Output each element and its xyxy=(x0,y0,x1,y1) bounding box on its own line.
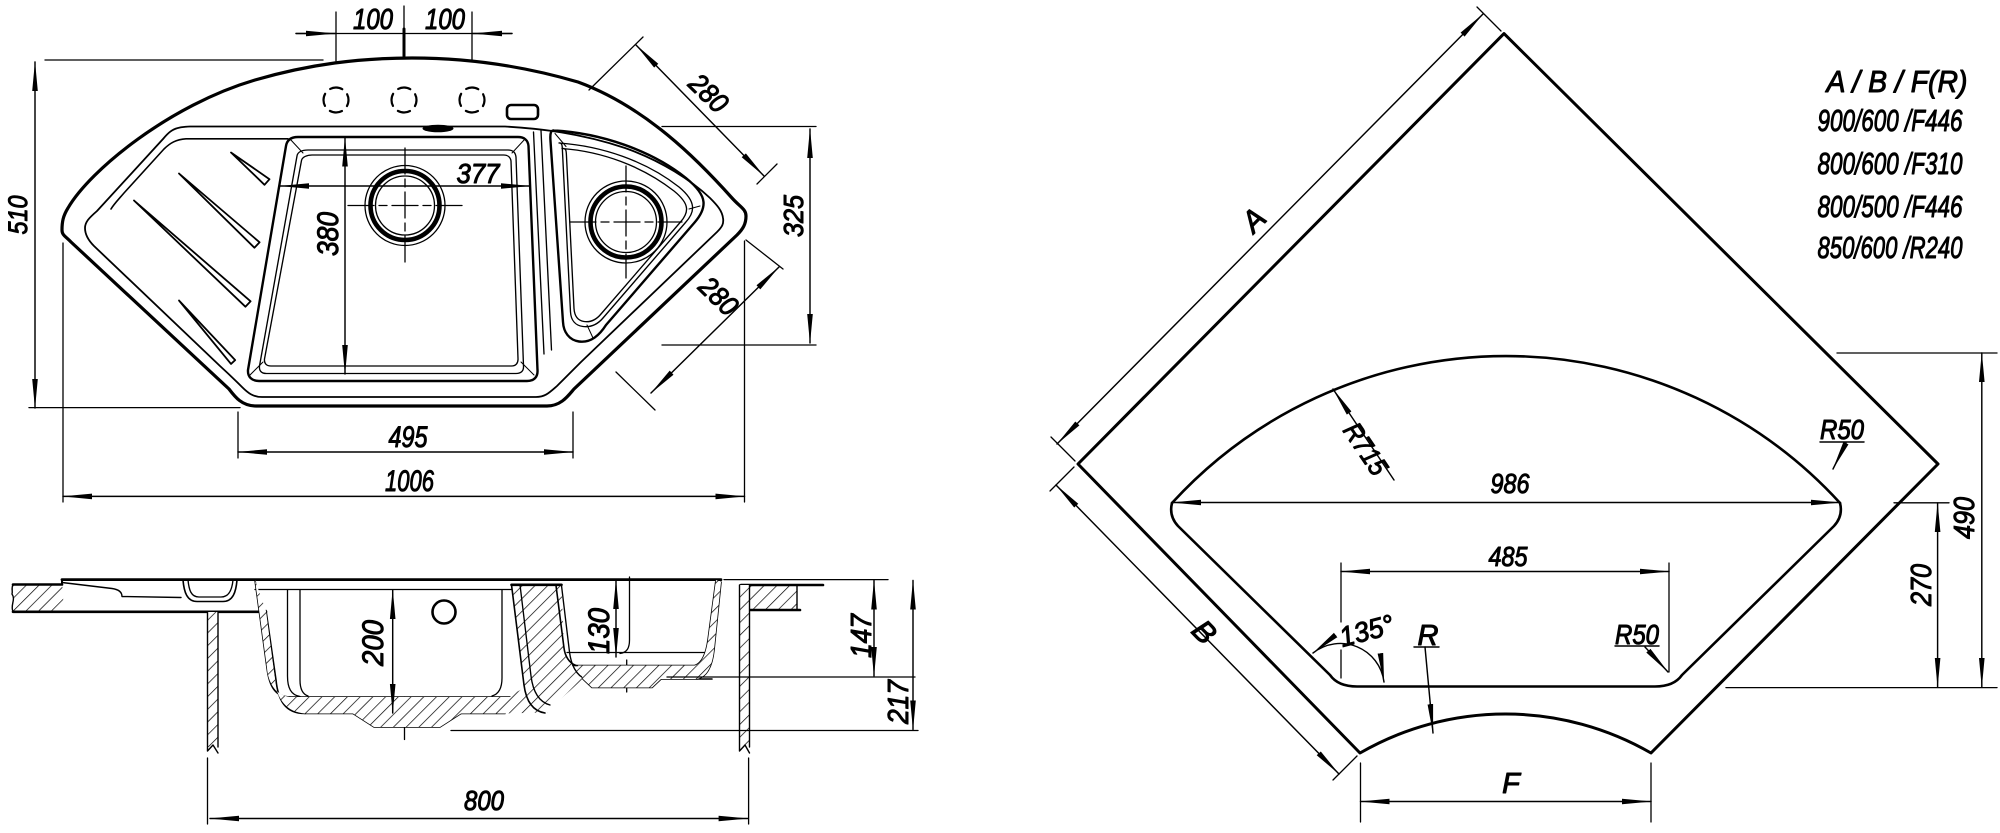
svg-text:B: B xyxy=(1185,614,1223,651)
svg-text:377: 377 xyxy=(457,158,501,189)
svg-text:325: 325 xyxy=(778,195,809,237)
svg-text:380: 380 xyxy=(312,212,345,256)
svg-text:485: 485 xyxy=(1489,541,1528,572)
svg-text:280: 280 xyxy=(682,67,735,119)
svg-text:1006: 1006 xyxy=(385,465,434,498)
svg-text:270: 270 xyxy=(1906,564,1938,607)
svg-text:900/600 /F446: 900/600 /F446 xyxy=(1818,103,1964,138)
svg-text:130: 130 xyxy=(583,608,616,654)
svg-text:R50: R50 xyxy=(1820,414,1864,445)
svg-text:217: 217 xyxy=(883,678,915,725)
svg-text:100: 100 xyxy=(425,4,465,36)
svg-text:R715: R715 xyxy=(1337,417,1394,482)
svg-text:280: 280 xyxy=(692,270,745,322)
svg-text:A: A xyxy=(1234,202,1273,241)
svg-text:800/600 /F310: 800/600 /F310 xyxy=(1818,146,1963,181)
svg-text:850/600 /R240: 850/600 /R240 xyxy=(1818,230,1963,265)
svg-text:510: 510 xyxy=(3,196,33,235)
svg-text:R: R xyxy=(1418,620,1439,652)
svg-text:490: 490 xyxy=(1949,497,1981,539)
svg-text:A / B / F(R): A / B / F(R) xyxy=(1825,64,1968,99)
svg-text:800: 800 xyxy=(464,785,504,816)
svg-text:135°: 135° xyxy=(1336,609,1397,653)
svg-text:200: 200 xyxy=(357,620,390,667)
svg-text:986: 986 xyxy=(1491,468,1530,499)
svg-text:100: 100 xyxy=(353,4,393,36)
svg-text:F: F xyxy=(1502,768,1522,800)
svg-text:147: 147 xyxy=(846,612,878,658)
svg-text:495: 495 xyxy=(389,421,428,454)
svg-text:800/500 /F446: 800/500 /F446 xyxy=(1818,189,1964,224)
